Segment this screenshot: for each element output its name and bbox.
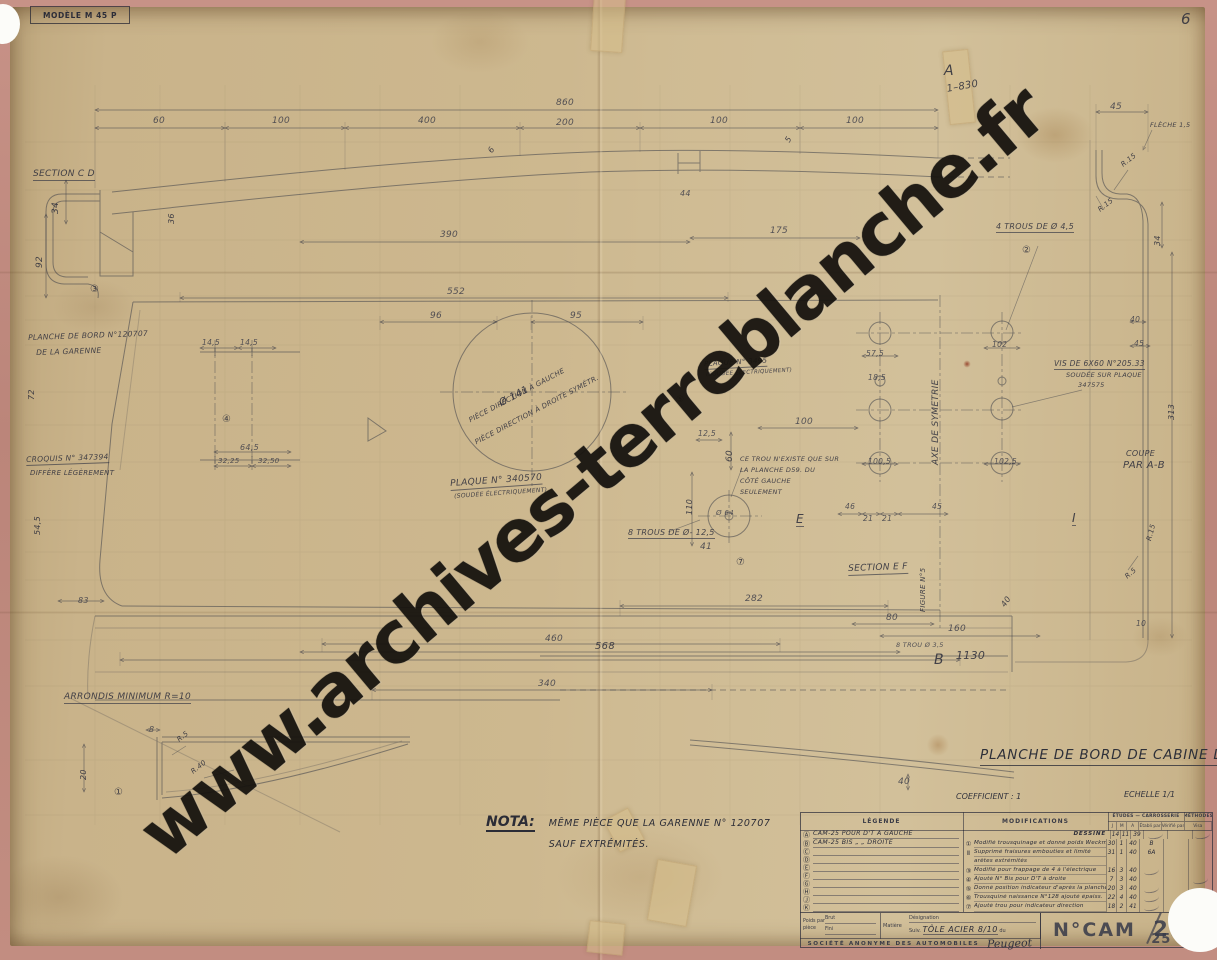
modification-text: DESSINÉ <box>974 831 1110 838</box>
dept-methodes: MÉTHODES <box>1185 812 1212 821</box>
visa-cell <box>1188 848 1212 857</box>
signature-scribble <box>1144 894 1160 903</box>
annotation: R.15 <box>1097 197 1115 213</box>
annotation: 40 <box>898 778 910 787</box>
date-col-M: M <box>1117 822 1126 830</box>
annotation: CE TROU N'EXISTE QUE SUR <box>740 456 839 463</box>
etabli-cell <box>1139 866 1163 875</box>
legend-text: CAM-25 POUR D'T À GAUCHE <box>813 830 959 839</box>
annotation: 340 <box>538 680 556 689</box>
verifie-cell <box>1163 839 1188 848</box>
date-col-Vérifié par: Vérifié par <box>1162 822 1185 830</box>
date-cell: 40 <box>1126 894 1139 903</box>
nota-line2: SAUF EXTRÉMITÉS. <box>549 839 649 850</box>
annotation: E <box>796 513 804 527</box>
material-label: Matière <box>880 923 909 929</box>
annotation: 18,5 <box>868 374 886 382</box>
signature-scribble <box>1192 876 1208 885</box>
date-cell: 22 <box>1106 894 1116 903</box>
legend-key: Ⓙ <box>803 897 810 904</box>
date-cell: 41 <box>1126 903 1139 912</box>
annotation: 21 <box>882 515 892 523</box>
annotation: 10 <box>1136 620 1146 628</box>
legend-row: ⒶCAM-25 POUR D'T À GAUCHE <box>800 830 963 839</box>
verifie-cell <box>1167 830 1192 839</box>
date-cell: 16 <box>1106 866 1116 875</box>
signature-scribble <box>1144 885 1160 894</box>
verifie-cell <box>1163 876 1188 885</box>
annotation: 40 <box>1130 316 1140 324</box>
legend-row: Ⓔ <box>800 864 963 872</box>
annotation: ARRONDIS MINIMUM R=10 <box>64 693 191 704</box>
nota-block: NOTA:MÊME PIÈCE QUE LA GARENNE N° 120707… <box>486 814 771 856</box>
annotation: R.15 <box>1120 152 1138 168</box>
annotation: Ø 64 <box>716 510 734 517</box>
annotation: 100 <box>272 117 290 126</box>
annotation: 390 <box>440 231 458 240</box>
annotation: DIFFÈRE LÉGÈREMENT <box>30 470 114 477</box>
legend-text: CAM-25 BIS „ „ DROITE <box>813 839 959 848</box>
annotation: AXE DE SYMETRIE <box>932 379 941 465</box>
legend-key: Ⓒ <box>803 849 810 856</box>
visa-cell <box>1188 866 1212 875</box>
legend-row: Ⓙ <box>800 896 963 904</box>
legend-key: Ⓗ <box>803 889 810 896</box>
annotation: 200 <box>556 119 574 128</box>
modification-number: ① <box>963 840 974 848</box>
date-col-Visa: Visa <box>1185 822 1211 830</box>
annotation: 34 <box>52 202 61 214</box>
date-cell: 7 <box>1106 876 1116 885</box>
date-cell: 1 <box>1116 839 1126 848</box>
annotation: A <box>944 64 954 78</box>
modification-row: ①Modifié trousquinage et donné poids Wec… <box>963 839 1212 848</box>
date-cell: 40 <box>1126 848 1139 857</box>
annotation: 64,5 <box>240 444 259 452</box>
visa-cell <box>1188 857 1212 866</box>
modification-text: Modifié pour frappage de 4 à l'électriqu… <box>974 867 1106 875</box>
modification-text: Supprimé fraisures embouties et limité <box>974 849 1106 857</box>
annotation: PLANCHE DE BORD N°120707 <box>28 330 148 342</box>
annotation: 14,5 <box>202 339 220 347</box>
annotation: ③ <box>90 285 99 295</box>
verifie-cell <box>1163 866 1188 875</box>
annotation: 100 <box>710 117 728 126</box>
annotation: FIGURE N°5 <box>920 568 927 612</box>
modification-text: Modifié trousquinage et donné poids Weck… <box>974 840 1106 848</box>
annotation: 552 <box>447 288 465 297</box>
company-line: SOCIÉTÉ ANONYME DES AUTOMOBILES Peugeot <box>800 938 1040 949</box>
annotation: 32,25 <box>218 458 240 465</box>
date-cell: 14 <box>1110 830 1120 839</box>
etabli-cell <box>1143 830 1167 839</box>
annotation: 45 <box>1134 340 1144 348</box>
date-cell: 40 <box>1126 866 1139 875</box>
annotation: 5 <box>784 135 794 144</box>
annotation: 41 <box>700 543 712 552</box>
annotation: CÔTÉ GAUCHE <box>740 478 791 485</box>
dept-etudes-carrosserie: ÉTUDES — CARROSSERIE <box>1108 812 1185 821</box>
modification-row: arêtes extrémités <box>963 857 1212 866</box>
annotation: 54,5 <box>34 516 42 535</box>
annotation: SECTION E F <box>848 563 908 576</box>
visa-cell <box>1188 876 1212 885</box>
annotation: SOUDÉE SUR PLAQUE <box>1066 372 1142 379</box>
annotation: 100 <box>795 418 813 427</box>
title-block: LÉGENDE MODIFICATIONS ÉTUDES — CARROSSER… <box>800 812 1213 948</box>
modification-number: Ⅱ <box>963 849 974 857</box>
annotation: 1–830 <box>946 79 979 94</box>
coefficient-label: COEFFICIENT : 1 <box>956 792 1021 801</box>
annotation: 860 <box>556 99 574 108</box>
suiv-label: Suiv. <box>909 928 921 934</box>
date-cell: 30 <box>1106 839 1116 848</box>
annotation: 95 <box>570 312 582 321</box>
title-block-bottom: Poids par pièce Brut Fini Matière Désign… <box>800 912 1213 949</box>
annotation: 313 <box>1168 404 1176 420</box>
annotation: 72 <box>28 389 36 400</box>
drawing-title: PLANCHE DE BORD DE CABINE D.S.A. <box>980 747 1217 766</box>
modifications-header: MODIFICATIONS <box>963 812 1109 831</box>
modification-row: ⅡSupprimé fraisures embouties et limité3… <box>963 848 1212 857</box>
drawing-sheet: 8606010040020010010045FLÈCHE 1,5A1–8306S… <box>0 0 1217 960</box>
annotation: ② <box>1022 246 1031 256</box>
visa-cell <box>1188 839 1212 848</box>
annotation: COUPE <box>1126 450 1155 458</box>
annotation: I <box>1072 512 1076 526</box>
annotation: 45 <box>932 503 942 511</box>
weight-fini-line: Fini <box>825 927 876 935</box>
date-cell: 2 <box>1116 903 1126 912</box>
etabli-cell <box>1139 894 1163 903</box>
date-cell: 3 <box>1116 876 1126 885</box>
legend-key: Ⓑ <box>803 841 810 848</box>
date-cell: 18 <box>1106 903 1116 912</box>
modification-number: ⑥ <box>963 894 974 902</box>
annotation: 347575 <box>1078 382 1105 389</box>
legend-key: Ⓚ <box>803 905 810 912</box>
annotation: 32,50 <box>258 458 280 465</box>
annotation: 36 <box>168 213 176 224</box>
date-cell: 39 <box>1130 830 1143 839</box>
annotation: 568 <box>595 642 615 652</box>
annotation: 8 <box>149 726 154 734</box>
legend-key: Ⓕ <box>803 873 810 880</box>
annotation: 102,5 <box>994 458 1017 466</box>
date-cell <box>1106 857 1116 866</box>
annotation: 83 <box>78 597 89 605</box>
annotation: 400 <box>418 117 436 126</box>
etabli-cell <box>1139 903 1163 912</box>
annotation: 92 <box>36 256 45 268</box>
modification-number: ③ <box>963 867 974 875</box>
annotation: VIS DE 6X60 N°205.33 <box>1054 360 1145 370</box>
date-cell: 40 <box>1126 885 1139 894</box>
annotation: 34 <box>1154 235 1162 246</box>
annotation: 45 <box>1110 103 1122 112</box>
annotation: 20 <box>80 769 88 780</box>
date-cell: 40 <box>1126 876 1139 885</box>
signature-scribble <box>1194 830 1210 839</box>
annotation: R.5 <box>1124 567 1138 580</box>
annotation: DE LA GARENNE <box>36 347 102 357</box>
nota-text: MÊME PIÈCE QUE LA GARENNE N° 120707SAUF … <box>549 814 771 856</box>
legend-row: Ⓒ <box>800 848 963 856</box>
legend-key: Ⓓ <box>803 857 810 864</box>
legend-row: ⒷCAM-25 BIS „ „ DROITE <box>800 839 963 848</box>
annotation: 1130 <box>956 650 985 661</box>
modification-row: ④Ajouté N° Bis pour D'T à droite7340 <box>963 876 1212 885</box>
date-cell <box>1126 857 1139 866</box>
annotation: 100 <box>846 117 864 126</box>
annotation: R.15 <box>1146 523 1157 541</box>
annotation: B <box>934 653 944 667</box>
modification-row: ③Modifié pour frappage de 4 à l'électriq… <box>963 866 1212 875</box>
weight-label: Poids par pièce <box>800 913 825 938</box>
date-cell: 4 <box>1116 894 1126 903</box>
weight-box: Poids par pièce Brut Fini <box>800 913 881 939</box>
modification-text: Ajouté N° Bis pour D'T à droite <box>974 876 1106 884</box>
signature-scribble <box>1144 903 1160 912</box>
annotation: PAR A-B <box>1123 461 1165 471</box>
modification-text: arêtes extrémités <box>974 858 1106 866</box>
annotation: SECTION C D <box>33 170 95 181</box>
department-header: ÉTUDES — CARROSSERIE MÉTHODES JMAÉtabli … <box>1108 812 1212 831</box>
annotation: 57,5 <box>866 350 884 358</box>
date-col-A: A <box>1127 822 1139 830</box>
annotation: 282 <box>745 595 763 604</box>
annotation: 40 <box>1000 595 1013 608</box>
etabli-cell <box>1139 857 1163 866</box>
designation-label: Désignation <box>909 914 1036 923</box>
annotation: CROQUIS N° 347394 <box>26 453 109 465</box>
etabli-cell <box>1139 885 1163 894</box>
annotation: 44 <box>680 190 691 198</box>
annotation: FLÈCHE 1,5 <box>1150 122 1190 129</box>
annotation: 46 <box>845 503 855 511</box>
annotation: 175 <box>770 227 788 236</box>
legend-rows: ⒶCAM-25 POUR D'T À GAUCHEⒷCAM-25 BIS „ „… <box>800 830 964 912</box>
annotation: 100,5 <box>868 458 891 466</box>
date-cell: 11 <box>1120 830 1130 839</box>
legend-key: Ⓖ <box>803 881 810 888</box>
annotation: ⑦ <box>736 558 745 568</box>
annotation: 460 <box>545 635 563 644</box>
annotation: 4 TROUS DE Ø 4,5 <box>996 223 1074 233</box>
company-name: SOCIÉTÉ ANONYME DES AUTOMOBILES <box>808 941 980 947</box>
etabli-cell: 6A <box>1139 848 1163 857</box>
annotation: 110 <box>686 499 694 515</box>
legend-row: Ⓗ <box>800 888 963 896</box>
material-value: TÔLE ACIER 8/10 <box>923 925 998 935</box>
legend-key: Ⓐ <box>803 832 810 839</box>
model-stamp: MODÈLE M 45 P <box>30 6 130 24</box>
date-cell: 20 <box>1106 885 1116 894</box>
scale-label: ECHELLE 1/1 <box>1124 790 1175 799</box>
modification-row: ⑤Donné position indicateur d'après la pl… <box>963 885 1212 894</box>
date-cell <box>1116 857 1126 866</box>
annotation: SEULEMENT <box>740 489 782 496</box>
annotation: R.5 <box>176 730 190 743</box>
etabli-cell <box>1139 876 1163 885</box>
modification-text: Ajouté trou pour indicateur direction <box>974 903 1106 911</box>
modification-text: Donné position indicateur d'après la pla… <box>974 885 1106 893</box>
model-stamp-label: MODÈLE M 45 P <box>43 11 117 20</box>
du-label: du <box>999 928 1005 934</box>
legend-header: LÉGENDE <box>800 812 964 831</box>
annotation: 60 <box>726 450 735 462</box>
date-cell: 3 <box>1116 866 1126 875</box>
nota-line1: MÊME PIÈCE QUE LA GARENNE N° 120707 <box>549 818 771 829</box>
verifie-cell <box>1163 857 1188 866</box>
signature-scribble <box>1148 830 1164 839</box>
modification-number: ④ <box>963 876 974 884</box>
date-cell: 3 <box>1116 885 1126 894</box>
legend-row: Ⓖ <box>800 880 963 888</box>
annotation: 6 <box>1181 12 1191 27</box>
legend-row: Ⓓ <box>800 856 963 864</box>
annotation: 102 <box>992 341 1007 349</box>
etabli-cell: B <box>1139 839 1163 848</box>
annotation: 14,5 <box>240 339 258 347</box>
date-cell: 31 <box>1106 848 1116 857</box>
annotation: ① <box>114 788 123 798</box>
modification-row: DESSINÉ141139 <box>963 830 1212 839</box>
date-cell: 40 <box>1126 839 1139 848</box>
annotation: 96 <box>430 312 442 321</box>
legend-key: Ⓔ <box>803 865 810 872</box>
brand-logo: Peugeot <box>987 936 1033 951</box>
modification-text: Trousquiné naissance N°128 ajouté épaiss… <box>974 894 1106 902</box>
date-cell: 1 <box>1116 848 1126 857</box>
legend-row: Ⓕ <box>800 872 963 880</box>
visa-cell <box>1192 830 1212 839</box>
annotation: 21 <box>863 515 873 523</box>
weight-brut-line: Brut <box>825 916 876 924</box>
date-col-J: J <box>1108 822 1117 830</box>
modification-number: ⑦ <box>963 903 974 911</box>
date-subcolumns: JMAÉtabli parVérifié parVisa <box>1108 822 1212 830</box>
signature-scribble <box>1144 866 1160 875</box>
nota-label: NOTA: <box>486 814 535 832</box>
drawing-number-prefix: N°CAM <box>1053 919 1136 941</box>
annotation: 8 TROUS DE Ø- 12,5 <box>628 529 715 539</box>
annotation: 160 <box>948 625 966 634</box>
annotation: 6 <box>487 146 497 155</box>
material-box: Matière Désignation Suiv. TÔLE ACIER 8/1… <box>880 913 1041 939</box>
modification-number: ⑤ <box>963 885 974 893</box>
annotation: 60 <box>153 117 165 126</box>
annotation: 80 <box>886 614 898 623</box>
annotation: LA PLANCHE D59. DU <box>740 467 815 474</box>
annotation: ④ <box>222 415 231 425</box>
verifie-cell <box>1163 848 1188 857</box>
legend-row: Ⓚ <box>800 904 963 912</box>
annotation: 8 TROU Ø 3,5 <box>896 642 944 649</box>
date-col-Établi par: Établi par <box>1139 822 1162 830</box>
